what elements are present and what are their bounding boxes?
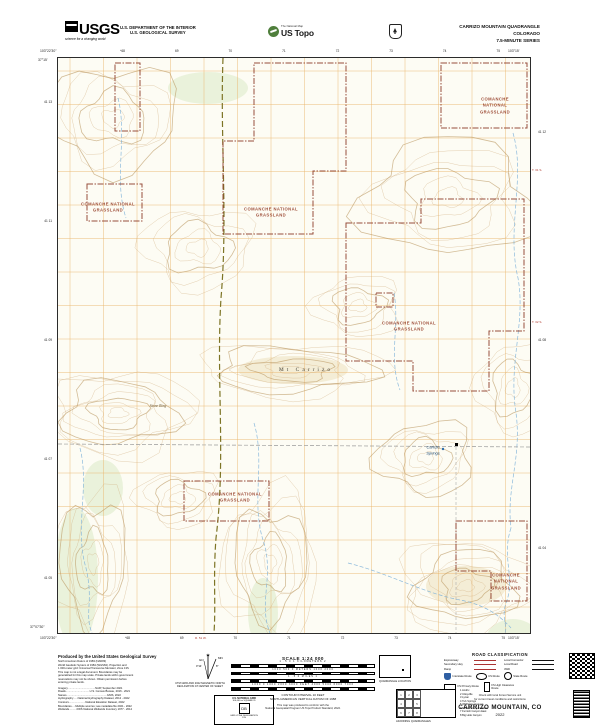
ne-longitude-label: 103°15' — [508, 49, 519, 53]
declination-caption: UTM GRID AND 2022 MAGNETIC NORTH DECLINA… — [170, 682, 230, 689]
ustopo-label: US Topo — [281, 28, 314, 38]
interstate-route-label: Interstate Route — [453, 675, 472, 678]
sheet-title-block: CARRIZO MOUNTAIN QUADRANGLE COLORADO 7.5… — [400, 24, 540, 45]
svg-text:8°: 8° — [216, 664, 218, 668]
usgs-logo-text: USGS — [79, 21, 120, 38]
grid-tick-label: 75 — [496, 49, 500, 53]
grid-tick-label: 41 08 — [538, 338, 546, 342]
qr-code — [569, 653, 595, 679]
us-route-label: US Route — [488, 675, 500, 678]
usng-zone: 13S — [215, 717, 273, 719]
map-neatline: COMANCHE NATIONALGRASSLAND COMANCHE NATI… — [57, 57, 531, 634]
ustopo-logo: The National Map US Topo — [268, 24, 314, 38]
grid-tick-label: 41 07 — [44, 457, 52, 461]
scale-block: SCALE 1:24 000 1 .5 0 1 KILOMETERS 2 100… — [228, 656, 378, 711]
scale-bar-row: 1000 500 0 METERS 1000 2000 — [228, 669, 378, 676]
road-classification-title: ROAD CLASSIFICATION — [444, 652, 556, 657]
grid-tick-label: ⁴68 — [125, 636, 130, 640]
quadrangle-location: QUADRANGLE LOCATION — [374, 655, 416, 683]
grassland-label: COMANCHE NATIONALGRASSLAND — [244, 207, 298, 220]
grid-tick-label: 72 — [341, 636, 345, 640]
adjoining-grid-cell: 2 — [405, 690, 413, 699]
grid-tick-label: 41 05 — [44, 576, 52, 580]
sw-latitude-label: 37°07'30" — [30, 625, 45, 629]
standard-note-2: National Geospatial Program US Topo Prod… — [228, 707, 378, 711]
adjoining-grid-cell: 8 — [413, 708, 421, 717]
produced-by-heading: Produced by the United States Geological… — [58, 654, 190, 659]
svg-text:MN: MN — [218, 656, 223, 660]
grid-tick-label: 41 12 — [538, 130, 546, 134]
declination-diagram: ★ MN 8° GN 0°14' — [192, 653, 228, 681]
township-label-1: T. 31 S. — [532, 168, 542, 172]
quad-location-dot — [402, 669, 405, 672]
grid-tick-label: 74 — [443, 49, 447, 53]
metadata-barcode — [573, 690, 590, 718]
grid-tick-label: 74 — [448, 636, 452, 640]
grid-tick-label: 41 04 — [538, 546, 546, 550]
adjoining-grid-cell: 7 — [405, 708, 413, 717]
carrizo-springs-label: CarrizoSprings — [426, 444, 440, 455]
right-grid-ticks: 41 1241 0841 04 — [532, 130, 546, 550]
state-route-label: State Route — [513, 675, 527, 678]
fs-primary-label: FS Primary Route — [458, 685, 479, 688]
credit-lines: Imagery.................................… — [58, 687, 190, 712]
road-classification: ROAD CLASSIFICATION Expressway Local Con… — [444, 652, 556, 717]
fs-high-clearance-label: FS High Clearance Route — [491, 684, 521, 690]
fs-primary-route-icon — [444, 684, 456, 691]
series-label: 7.5-MINUTE SERIES — [400, 38, 540, 45]
grassland-label: COMANCHE NATIONALGRASSLAND — [478, 97, 513, 116]
grid-tick-label: 70 — [229, 49, 233, 53]
township-label-2: T. 32 S. — [532, 320, 542, 324]
adjoining-grid-cell: 4 — [397, 699, 405, 708]
grassland-label: COMANCHE NATIONALGRASSLAND — [491, 573, 521, 592]
state-route-icon — [504, 672, 512, 680]
quad-title: CARRIZO MOUNTAIN QUADRANGLE — [400, 24, 540, 31]
interstate-shield-icon — [444, 673, 451, 680]
grid-tick-label: 72 — [336, 49, 340, 53]
grassland-label: COMANCHE NATIONALGRASSLAND — [208, 492, 262, 505]
grid-tick-label: 41 13 — [44, 100, 52, 104]
dept-line-2: U.S. GEOLOGICAL SURVEY — [120, 30, 196, 35]
road-class-row: Secondary Hwy Local Road — [444, 663, 556, 666]
grid-tick-label: 71 — [282, 49, 286, 53]
grid-tick-label: 69 — [175, 49, 179, 53]
grassland-label: COMANCHE NATIONALGRASSLAND — [382, 321, 436, 334]
sheet-year: 2022 — [444, 712, 556, 717]
vertical-datum-note: NORTH AMERICAN VERTICAL DATUM OF 1988 — [228, 697, 378, 701]
svg-text:0°14': 0°14' — [196, 664, 202, 668]
us-route-icon — [476, 673, 487, 681]
adjoining-caption: ADJOINING QUADRANGLES — [396, 720, 456, 723]
usgs-wave-icon — [65, 21, 78, 32]
range-label: R. 51 W. — [195, 636, 207, 640]
quad-location-caption: QUADRANGLE LOCATION — [374, 680, 416, 683]
mt-carrizo-label: Mt Carrizo — [279, 367, 333, 373]
topo-map-canvas — [58, 58, 530, 633]
nw-longitude-label: 103°22'30" — [40, 49, 56, 53]
bottom-grid-ticks: ⁴6869707172737475 — [125, 636, 505, 640]
road-class-rows: Expressway Local Connector Secondary Hwy… — [444, 659, 556, 671]
grid-tick-label: 41 11 — [44, 219, 52, 223]
top-grid-ticks: ⁴6869707172737475 — [120, 49, 500, 53]
scale-bar-row: 1 .5 0 MILES 1 — [228, 676, 378, 683]
stone-ring-label: Stone Ring — [150, 404, 167, 408]
grassland-label: COMANCHE NATIONALGRASSLAND — [81, 202, 135, 215]
adjoining-grid-cell: 6 — [397, 708, 405, 717]
scale-bar-row: 1 .5 0 1 KILOMETERS 2 — [228, 661, 378, 668]
grid-tick-label: 73 — [394, 636, 398, 640]
adjoining-grid-cell: 1 — [397, 690, 405, 699]
svg-text:GN: GN — [199, 658, 204, 662]
left-grid-ticks: 41 1341 1141 0941 0741 05 — [38, 100, 52, 580]
map-sheet-page: USGS science for a changing world U.S. D… — [0, 0, 600, 725]
grid-tick-label: 69 — [180, 636, 184, 640]
grid-tick-label: ⁴68 — [120, 49, 125, 53]
road-class-row: Expressway Local Connector — [444, 659, 556, 662]
fs-note-2: for current travel conditions and restri… — [444, 698, 556, 702]
sw-longitude-label: 103°22'30" — [40, 636, 56, 640]
national-map-icon — [268, 26, 279, 37]
road-class-row: Ramp 4WD — [444, 668, 556, 671]
adjoining-grid-cell — [405, 699, 413, 708]
grid-tick-label: 73 — [389, 49, 393, 53]
usgs-logo: USGS science for a changing world — [65, 21, 120, 41]
sheet-name: CARRIZO MOUNTAIN, CO — [444, 704, 556, 711]
datum-lines: North American Datum of 1983 (NAD83)Worl… — [58, 660, 190, 685]
grid-tick-label: 70 — [234, 636, 238, 640]
grid-tick-label: 41 09 — [44, 338, 52, 342]
grid-tick-label: 75 — [501, 636, 505, 640]
scale-bars: 1 .5 0 1 KILOMETERS 2 1000 500 0 METERS … — [228, 661, 378, 691]
adjoining-grid-cell: 3 — [413, 690, 421, 699]
credit-line: Wetlands..........FWS National Wetlands … — [58, 708, 190, 712]
adjoining-grid-cell: 5 — [413, 699, 421, 708]
nw-latitude-label: 37°15' — [38, 58, 48, 62]
scale-bar-row: 1000 0 1000 2000 3000 FEET 4000 5000 600… — [228, 684, 378, 691]
department-heading: U.S. DEPARTMENT OF THE INTERIOR U.S. GEO… — [120, 25, 196, 36]
fs-high-clearance-icon — [484, 682, 490, 692]
se-longitude-label: 103°15' — [508, 636, 519, 640]
svg-text:★: ★ — [206, 653, 211, 659]
grid-tick-label: 71 — [287, 636, 291, 640]
state-label: COLORADO — [400, 31, 540, 38]
state-outline-map — [379, 655, 411, 678]
